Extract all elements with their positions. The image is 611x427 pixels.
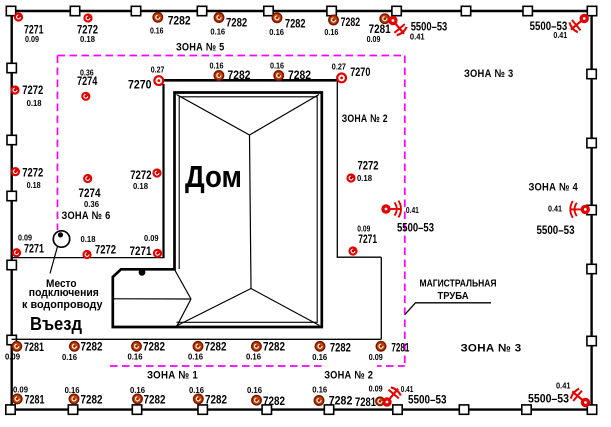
svg-text:0.27: 0.27	[151, 65, 165, 75]
svg-text:0.41: 0.41	[406, 205, 419, 215]
svg-text:7282: 7282	[81, 395, 103, 407]
svg-text:7270: 7270	[128, 80, 152, 92]
svg-text:ЗОНА № 1: ЗОНА № 1	[147, 369, 198, 381]
svg-text:МАГИСТРАЛЬНАЯ: МАГИСТРАЛЬНАЯ	[420, 277, 497, 289]
svg-text:5500–53: 5500–53	[408, 394, 447, 406]
svg-text:0.09: 0.09	[5, 351, 20, 361]
svg-text:7282: 7282	[226, 18, 247, 30]
svg-text:ЗОНА № 2: ЗОНА № 2	[324, 369, 373, 381]
svg-text:ЗОНА № 3: ЗОНА № 3	[461, 342, 522, 354]
svg-text:0.16: 0.16	[130, 385, 145, 395]
svg-text:7282: 7282	[288, 70, 311, 82]
svg-text:0.16: 0.16	[189, 385, 204, 395]
svg-text:0.09: 0.09	[25, 34, 39, 44]
svg-text:0.09: 0.09	[18, 232, 32, 242]
svg-text:7281: 7281	[25, 395, 45, 407]
svg-text:0.09: 0.09	[13, 384, 28, 394]
svg-text:7282: 7282	[263, 396, 285, 408]
svg-text:0.41: 0.41	[548, 203, 562, 213]
svg-text:0.16: 0.16	[128, 352, 143, 362]
svg-text:7282: 7282	[341, 17, 361, 29]
svg-text:5500–53: 5500–53	[528, 393, 569, 405]
svg-text:0.36: 0.36	[84, 199, 99, 209]
svg-text:0.16: 0.16	[62, 352, 77, 362]
svg-text:0.16: 0.16	[246, 352, 261, 362]
svg-text:0.16: 0.16	[324, 27, 338, 37]
svg-text:0.16: 0.16	[269, 27, 284, 37]
svg-text:0.18: 0.18	[357, 173, 372, 183]
svg-text:0.41: 0.41	[410, 31, 425, 41]
svg-text:7282: 7282	[205, 395, 227, 407]
svg-text:0.09: 0.09	[369, 384, 383, 394]
svg-text:0.09: 0.09	[367, 34, 381, 44]
svg-text:Въезд: Въезд	[30, 314, 83, 334]
svg-text:0.18: 0.18	[80, 34, 95, 44]
svg-text:0.27: 0.27	[332, 61, 346, 71]
svg-text:7282: 7282	[263, 342, 285, 354]
svg-text:подключения: подключения	[29, 287, 99, 299]
svg-text:0.41: 0.41	[556, 381, 571, 391]
svg-text:0.09: 0.09	[357, 223, 370, 233]
svg-text:0.16: 0.16	[150, 25, 164, 35]
svg-text:ЗОНА № 4: ЗОНА № 4	[529, 182, 579, 194]
svg-text:0.18: 0.18	[81, 234, 96, 244]
svg-text:0.41: 0.41	[553, 30, 567, 40]
svg-text:7282: 7282	[205, 342, 227, 354]
svg-text:0.16: 0.16	[312, 385, 327, 395]
svg-text:0.16: 0.16	[210, 60, 224, 70]
svg-text:0.16: 0.16	[188, 352, 203, 362]
svg-text:ЗОНА № 3: ЗОНА № 3	[464, 68, 514, 80]
svg-text:7271: 7271	[358, 234, 377, 246]
svg-text:0.09: 0.09	[369, 352, 383, 362]
svg-text:0.09: 0.09	[144, 233, 159, 243]
svg-text:7271: 7271	[24, 244, 44, 256]
svg-text:7270: 7270	[350, 67, 370, 79]
svg-text:0.16: 0.16	[270, 60, 284, 70]
svg-text:7282: 7282	[330, 342, 351, 354]
svg-text:0.18: 0.18	[27, 98, 42, 108]
svg-text:7282: 7282	[143, 342, 165, 354]
svg-text:7282: 7282	[329, 396, 353, 408]
svg-text:0.18: 0.18	[27, 180, 41, 190]
svg-text:5500–53: 5500–53	[397, 222, 434, 234]
svg-text:7282: 7282	[228, 70, 251, 82]
svg-text:ЗОНА № 2: ЗОНА № 2	[342, 113, 388, 125]
svg-text:7272: 7272	[358, 161, 379, 173]
svg-text:7282: 7282	[144, 395, 166, 407]
svg-text:0.16: 0.16	[247, 385, 262, 395]
svg-text:7281: 7281	[355, 397, 376, 409]
svg-text:7271: 7271	[130, 246, 153, 258]
svg-text:7272: 7272	[95, 245, 116, 257]
svg-text:ЗОНА № 6: ЗОНА № 6	[62, 210, 111, 222]
svg-text:7272: 7272	[22, 85, 43, 97]
svg-text:7282: 7282	[168, 15, 191, 27]
svg-text:ТРУБА: ТРУБА	[438, 290, 469, 302]
svg-text:7274: 7274	[77, 76, 98, 88]
svg-text:к водопроводу: к водопроводу	[22, 299, 103, 311]
svg-text:7281: 7281	[24, 342, 44, 354]
svg-text:0.16: 0.16	[210, 26, 225, 36]
svg-text:7282: 7282	[81, 342, 103, 354]
svg-text:0.41: 0.41	[401, 384, 414, 394]
svg-text:5500–53: 5500–53	[537, 225, 575, 237]
svg-text:0.16: 0.16	[312, 352, 327, 362]
svg-text:7272: 7272	[22, 168, 43, 180]
svg-text:7282: 7282	[285, 18, 306, 30]
svg-text:7281: 7281	[391, 342, 409, 354]
svg-text:Дом: Дом	[185, 159, 242, 194]
svg-text:0.16: 0.16	[65, 385, 80, 395]
svg-text:ЗОНА № 5: ЗОНА № 5	[176, 42, 225, 54]
svg-text:0.18: 0.18	[133, 181, 148, 191]
